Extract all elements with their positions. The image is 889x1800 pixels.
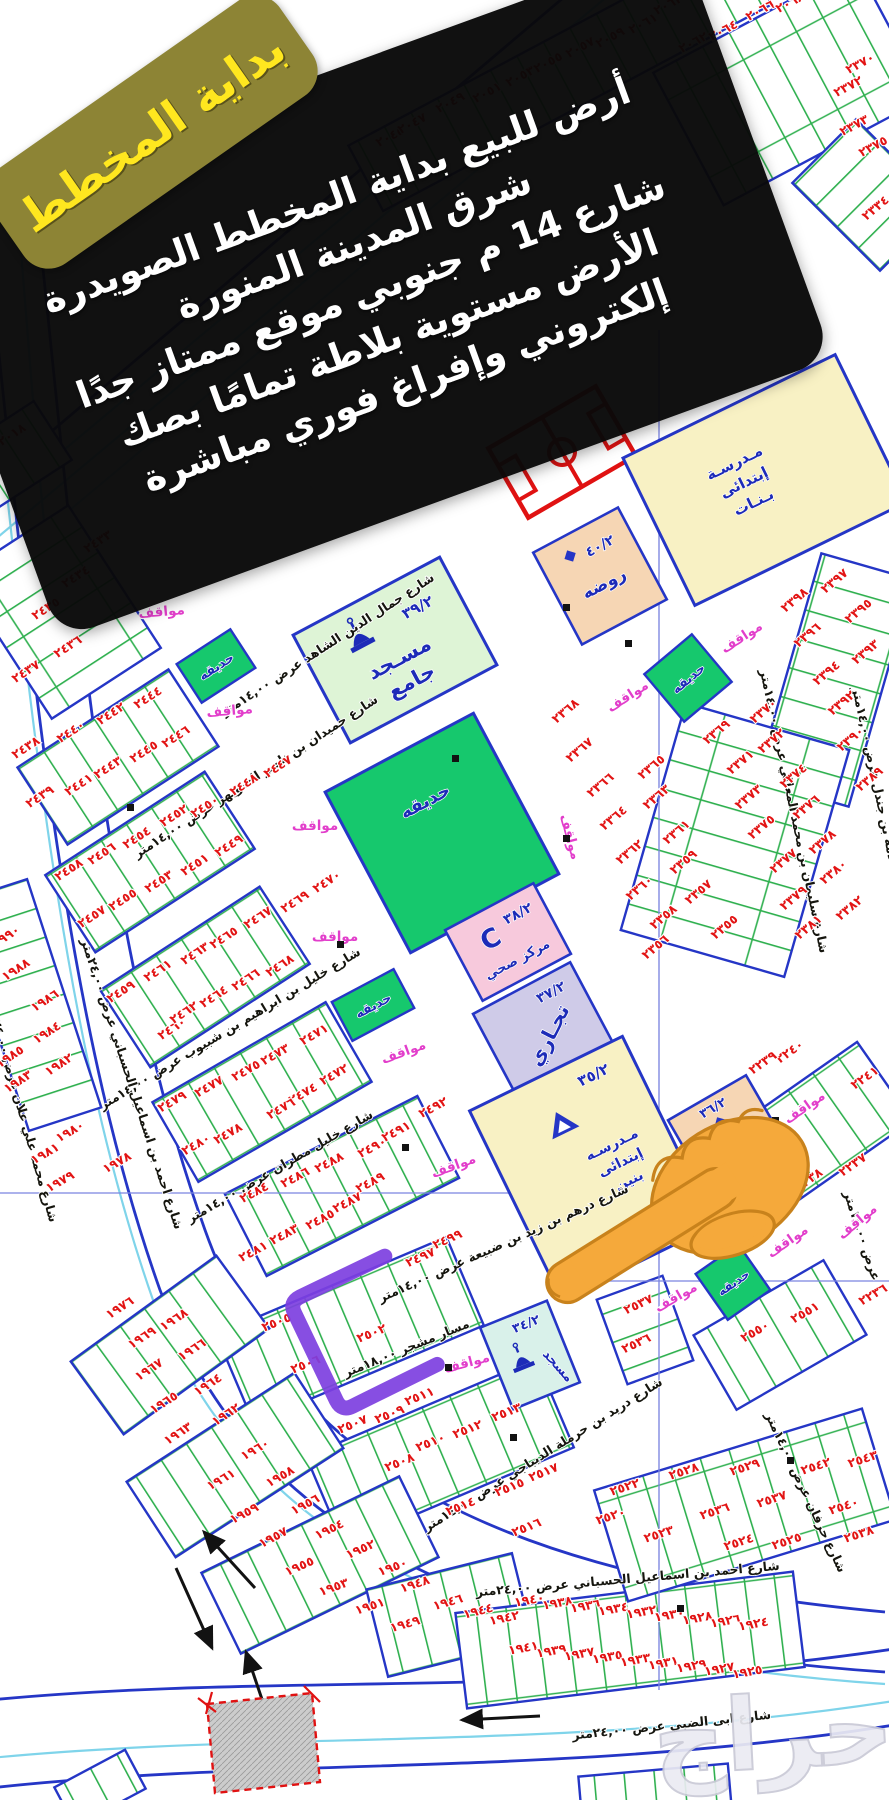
parking-label: مواقف bbox=[312, 929, 358, 945]
watermark: حراج bbox=[650, 1669, 889, 1799]
screenshot-root: ٣٩/٢ مسـجد جامع ٤٠/٢ روضه مـدرسـة إبتدائ… bbox=[0, 0, 889, 1800]
parking-label: مواقف bbox=[292, 818, 338, 834]
